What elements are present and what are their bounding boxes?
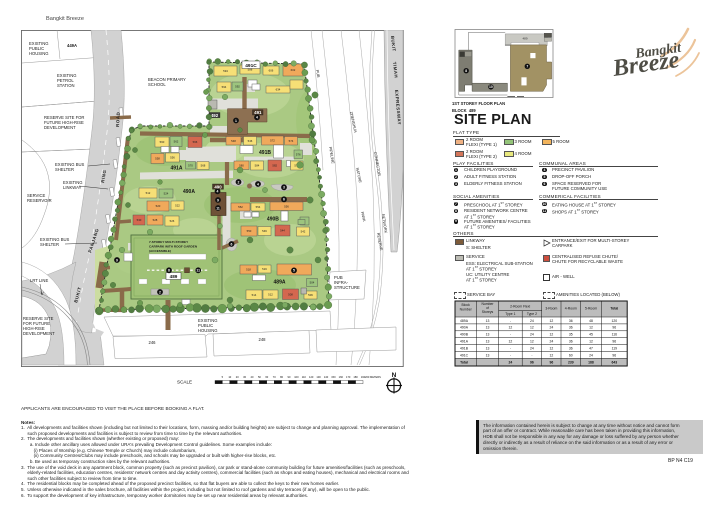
svg-text:518: 518 <box>246 268 251 272</box>
svg-text:12: 12 <box>589 340 593 344</box>
svg-text:Type 1: Type 1 <box>505 312 515 316</box>
svg-text:12: 12 <box>530 326 534 330</box>
svg-text:4: 4 <box>217 190 219 194</box>
svg-text:568: 568 <box>201 164 206 168</box>
svg-text:606: 606 <box>269 69 274 73</box>
svg-text:522: 522 <box>175 204 180 208</box>
svg-text:13: 13 <box>486 346 490 350</box>
svg-text:90: 90 <box>288 375 291 379</box>
svg-text:HOUSING: HOUSING <box>29 51 49 56</box>
svg-text:-: - <box>510 333 511 337</box>
svg-text:HOUSING: HOUSING <box>198 328 218 333</box>
svg-text:100: 100 <box>294 375 299 379</box>
svg-text:6: 6 <box>283 198 285 202</box>
svg-text:Total: Total <box>460 361 468 365</box>
svg-text:558: 558 <box>155 157 160 161</box>
svg-text:11: 11 <box>196 269 200 273</box>
svg-text:2: 2 <box>238 180 240 184</box>
svg-text:602: 602 <box>291 68 296 72</box>
svg-text:150: 150 <box>331 375 336 379</box>
svg-text:546: 546 <box>262 229 267 233</box>
svg-text:2: 2 <box>159 290 161 294</box>
svg-text:13: 13 <box>486 326 490 330</box>
svg-text:96: 96 <box>612 353 616 357</box>
svg-text:544: 544 <box>280 229 285 233</box>
svg-text:566: 566 <box>193 140 198 144</box>
svg-text:12: 12 <box>549 346 553 350</box>
svg-text:36: 36 <box>569 326 573 330</box>
svg-text:1: 1 <box>235 119 237 123</box>
svg-text:490A: 490A <box>460 326 469 330</box>
svg-text:80: 80 <box>280 375 283 379</box>
svg-text:120: 120 <box>309 375 314 379</box>
svg-text:140: 140 <box>324 375 329 379</box>
svg-text:-: - <box>510 319 511 323</box>
svg-text:LRT LINE: LRT LINE <box>30 278 48 283</box>
svg-text:10: 10 <box>489 85 493 89</box>
svg-text:12: 12 <box>509 326 513 330</box>
svg-text:514: 514 <box>252 293 257 297</box>
svg-text:10: 10 <box>228 375 231 379</box>
svg-text:239: 239 <box>568 361 574 365</box>
svg-text:Storeys: Storeys <box>482 310 494 314</box>
svg-text:489: 489 <box>170 274 178 279</box>
svg-text:170: 170 <box>346 375 351 379</box>
svg-text:Type 2: Type 2 <box>527 312 537 316</box>
svg-text:489: 489 <box>522 37 527 41</box>
svg-text:512: 512 <box>268 293 273 297</box>
svg-text:4: 4 <box>257 182 259 186</box>
svg-text:8: 8 <box>168 269 170 273</box>
svg-text:643: 643 <box>611 361 617 365</box>
svg-text:60: 60 <box>265 375 268 379</box>
svg-text:542: 542 <box>301 230 306 234</box>
svg-text:(ACCESSIBLE): (ACCESSIBLE) <box>149 249 171 253</box>
svg-text:528: 528 <box>153 218 158 222</box>
svg-text:50: 50 <box>258 375 261 379</box>
svg-text:4: 4 <box>256 116 258 120</box>
svg-text:504: 504 <box>310 281 315 285</box>
svg-text:9: 9 <box>217 198 219 202</box>
svg-text:491C: 491C <box>245 63 257 69</box>
svg-text:STRUCTURE: STRUCTURE <box>334 285 360 290</box>
svg-text:-: - <box>531 353 532 357</box>
svg-text:188: 188 <box>588 361 594 365</box>
svg-text:45: 45 <box>589 333 593 337</box>
svg-text:60: 60 <box>569 353 573 357</box>
svg-text:576: 576 <box>296 152 301 156</box>
svg-text:9: 9 <box>116 258 118 262</box>
svg-text:594: 594 <box>222 85 227 89</box>
svg-text:7: 7 <box>526 65 528 69</box>
svg-text:DEVELOPMENT: DEVELOPMENT <box>44 125 76 130</box>
svg-text:12: 12 <box>530 340 534 344</box>
svg-text:491B: 491B <box>460 346 469 350</box>
svg-text:STATION: STATION <box>57 83 75 88</box>
svg-text:5: 5 <box>222 375 224 379</box>
svg-text:DEVELOPMENT: DEVELOPMENT <box>23 331 55 336</box>
svg-text:CARPARK WITH ROOF GARDEN: CARPARK WITH ROOF GARDEN <box>149 245 198 249</box>
svg-text:ROAD: ROAD <box>115 111 121 127</box>
svg-text:508: 508 <box>288 292 293 296</box>
svg-text:582: 582 <box>272 164 277 168</box>
svg-text:20: 20 <box>236 375 239 379</box>
svg-text:11: 11 <box>216 206 220 210</box>
svg-text:116: 116 <box>612 333 618 337</box>
svg-text:584: 584 <box>255 164 260 168</box>
svg-text:526: 526 <box>170 219 175 223</box>
svg-text:246: 246 <box>149 340 157 345</box>
svg-text:36: 36 <box>569 346 573 350</box>
svg-text:48: 48 <box>589 319 593 323</box>
svg-text:12: 12 <box>549 333 553 337</box>
svg-text:13: 13 <box>486 319 490 323</box>
svg-text:550: 550 <box>247 229 252 233</box>
svg-text:24: 24 <box>530 346 534 350</box>
svg-text:12: 12 <box>589 326 593 330</box>
svg-text:SCALE: SCALE <box>177 380 192 385</box>
svg-text:SHELTER: SHELTER <box>55 167 74 172</box>
svg-text:Total: Total <box>610 307 618 311</box>
svg-text:36: 36 <box>569 340 573 344</box>
svg-text:546: 546 <box>248 139 253 143</box>
svg-text:96: 96 <box>612 340 616 344</box>
svg-text:35: 35 <box>569 333 573 337</box>
svg-text:Breeze: Breeze <box>610 47 681 82</box>
svg-text:491A: 491A <box>460 340 469 344</box>
svg-text:Number: Number <box>460 307 473 311</box>
svg-text:491B: 491B <box>259 150 271 156</box>
svg-text:12: 12 <box>549 353 553 357</box>
svg-text:548: 548 <box>231 139 236 143</box>
svg-text:24: 24 <box>530 319 534 323</box>
svg-text:120: 120 <box>611 319 617 323</box>
svg-text:524: 524 <box>164 192 169 196</box>
svg-text:-: - <box>510 353 511 357</box>
svg-text:634: 634 <box>276 88 281 92</box>
svg-text:110: 110 <box>302 375 307 379</box>
svg-text:70: 70 <box>273 375 276 379</box>
svg-text:5-Room: 5-Room <box>585 307 597 311</box>
svg-text:489A: 489A <box>460 319 469 323</box>
svg-text:130: 130 <box>316 375 321 379</box>
svg-text:24: 24 <box>549 326 553 330</box>
svg-text:13: 13 <box>486 333 490 337</box>
svg-text:572: 572 <box>270 139 275 143</box>
svg-text:5: 5 <box>293 269 295 273</box>
svg-text:40: 40 <box>251 375 254 379</box>
svg-text:554: 554 <box>256 205 261 209</box>
svg-text:491C: 491C <box>460 353 469 357</box>
svg-text:592: 592 <box>235 85 240 89</box>
svg-text:491A: 491A <box>171 166 183 172</box>
svg-text:47: 47 <box>589 346 593 350</box>
svg-text:6: 6 <box>231 242 233 246</box>
svg-text:30: 30 <box>243 375 246 379</box>
svg-text:552: 552 <box>238 205 243 209</box>
svg-text:512: 512 <box>146 191 151 195</box>
svg-text:556: 556 <box>284 204 289 208</box>
svg-text:248: 248 <box>259 337 267 342</box>
svg-text:570: 570 <box>188 163 193 167</box>
svg-text:574: 574 <box>289 139 294 143</box>
svg-text:530: 530 <box>137 218 142 222</box>
svg-text:560: 560 <box>160 140 165 144</box>
svg-text:24: 24 <box>530 333 534 337</box>
svg-text:24: 24 <box>549 340 553 344</box>
svg-text:556: 556 <box>170 156 175 160</box>
svg-text:4-Room: 4-Room <box>565 307 577 311</box>
svg-text:-: - <box>510 346 511 350</box>
svg-text:LINKWAY: LINKWAY <box>63 185 82 190</box>
svg-text:96: 96 <box>530 361 534 365</box>
svg-text:13: 13 <box>486 353 490 357</box>
svg-text:96: 96 <box>612 326 616 330</box>
svg-text:RESERVOIR: RESERVOIR <box>27 198 52 203</box>
svg-text:119: 119 <box>612 346 618 350</box>
svg-text:13: 13 <box>486 340 490 344</box>
svg-text:506: 506 <box>308 293 313 297</box>
svg-text:594: 594 <box>223 69 228 73</box>
svg-text:491: 491 <box>254 110 262 115</box>
svg-text:Block: Block <box>462 303 471 307</box>
svg-text:12: 12 <box>509 340 513 344</box>
svg-text:489A: 489A <box>274 280 286 286</box>
svg-text:490B: 490B <box>267 217 279 223</box>
svg-text:96: 96 <box>549 361 553 365</box>
svg-text:562: 562 <box>174 140 179 144</box>
svg-text:449A: 449A <box>67 43 77 48</box>
svg-text:12: 12 <box>549 319 553 323</box>
svg-text:7-STOREY MULTI-STOREY: 7-STOREY MULTI-STOREY <box>149 240 189 244</box>
svg-text:SHELTER: SHELTER <box>40 242 59 247</box>
svg-text:490B: 490B <box>460 333 469 337</box>
svg-text:8: 8 <box>465 69 467 73</box>
svg-text:36: 36 <box>569 319 573 323</box>
svg-text:180: 180 <box>353 375 358 379</box>
svg-text:492: 492 <box>211 113 219 118</box>
svg-text:580: 580 <box>239 163 244 167</box>
svg-text:160: 160 <box>339 375 344 379</box>
svg-text:3-Room: 3-Room <box>545 307 557 311</box>
svg-text:2-Room Flexi: 2-Room Flexi <box>510 304 530 308</box>
svg-text:520: 520 <box>156 204 161 208</box>
svg-text:24: 24 <box>509 361 513 365</box>
svg-text:24: 24 <box>589 353 593 357</box>
svg-text:490A: 490A <box>183 189 195 195</box>
svg-text:516: 516 <box>262 267 267 271</box>
svg-text:SCHOOL: SCHOOL <box>148 82 166 87</box>
svg-text:3: 3 <box>283 186 285 190</box>
svg-text:200 METERS: 200 METERS <box>365 375 381 379</box>
